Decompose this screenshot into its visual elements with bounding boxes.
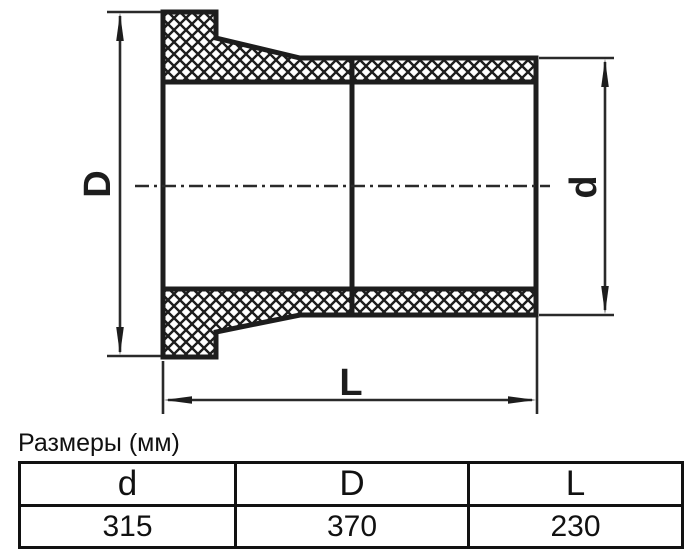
technical-drawing-page: D d L Размеры (мм) d D L 315 370 230 bbox=[0, 0, 700, 560]
dimension-label-L: L bbox=[339, 362, 362, 404]
pipe-coupling-drawing: D d L bbox=[0, 0, 700, 430]
arrowhead-D-up bbox=[116, 13, 124, 41]
table-value-d: 315 bbox=[20, 506, 236, 548]
dimension-label-D: D bbox=[77, 170, 119, 197]
arrowhead-L-left bbox=[164, 396, 192, 404]
arrowhead-d-up bbox=[601, 59, 609, 87]
table-header-D: D bbox=[236, 463, 469, 506]
table-header-row: d D L bbox=[20, 463, 683, 506]
arrowhead-L-right bbox=[508, 396, 536, 404]
table-value-D: 370 bbox=[236, 506, 469, 548]
table-caption: Размеры (мм) bbox=[18, 429, 180, 457]
table-header-d: d bbox=[20, 463, 236, 506]
table-values-row: 315 370 230 bbox=[20, 506, 683, 548]
dimensions-table: d D L 315 370 230 bbox=[18, 461, 684, 549]
table-value-L: 230 bbox=[469, 506, 683, 548]
dimension-label-d: d bbox=[563, 175, 605, 198]
arrowhead-D-down bbox=[116, 327, 124, 355]
arrowhead-d-down bbox=[601, 286, 609, 314]
table-header-L: L bbox=[469, 463, 683, 506]
